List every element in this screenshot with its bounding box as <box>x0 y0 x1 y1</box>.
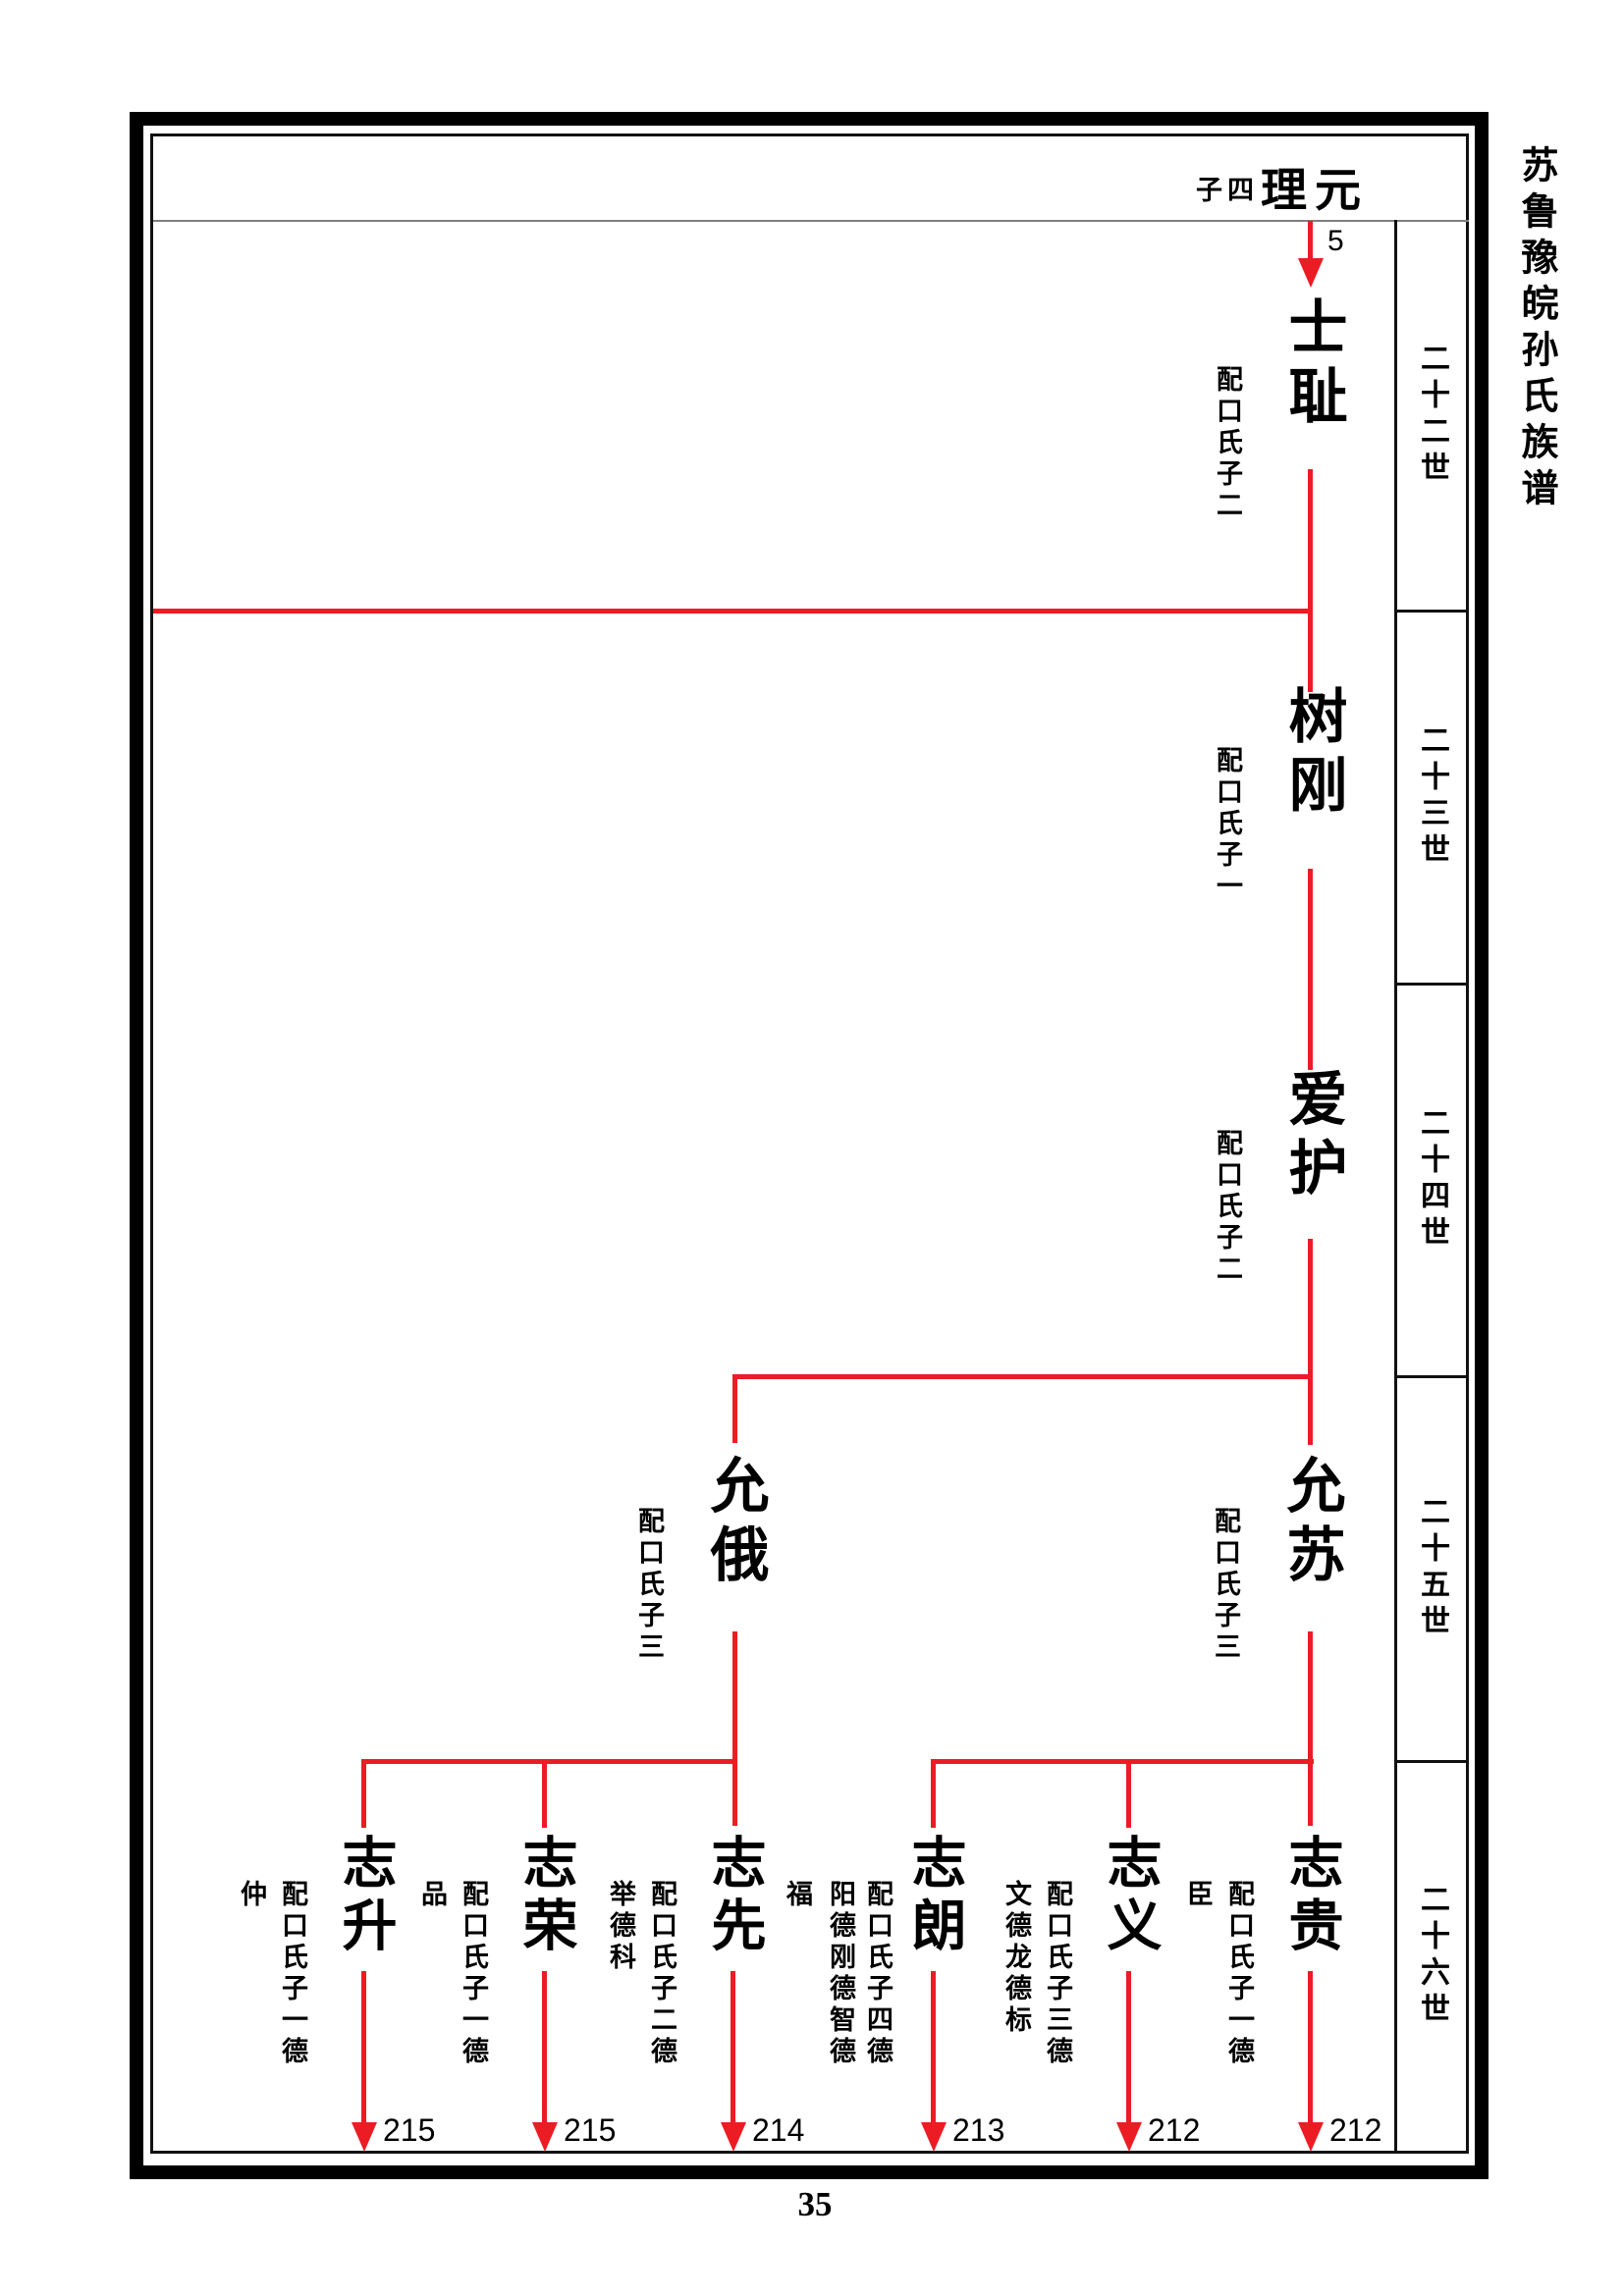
continuation-line <box>1126 1971 1131 2124</box>
continuation-line <box>542 1971 547 2124</box>
sibling-branch-line-g26-right <box>931 1759 1314 1764</box>
person-name-g26-6: 志贵 <box>1279 1834 1342 1959</box>
continuation-ref: 214 <box>752 2112 804 2148</box>
continuation-line-top <box>1308 221 1313 262</box>
person-name-g22: 士耻 <box>1278 296 1347 434</box>
genealogy-page: 子四 理元 二十二世 二十三世 二十四世 二十五世 二十六世 苏鲁豫皖孙氏族谱 … <box>0 0 1624 2296</box>
generation-label-25: 二十五世 <box>1414 1496 1449 1641</box>
generation-label-24: 二十四世 <box>1414 1107 1449 1253</box>
person-name-g26-3: 志先 <box>702 1834 765 1959</box>
person-sons-g26-4: 阳德刚德智德 <box>824 1880 856 2068</box>
person-name-g25-right: 允苏 <box>1276 1455 1345 1592</box>
continuation-arrow-icon <box>1298 258 1324 288</box>
person-name-g26-2: 志荣 <box>514 1834 576 1959</box>
person-name-g26-4: 志朗 <box>902 1834 965 1959</box>
person-spouse-g25-left: 配口氏子三 <box>632 1507 665 1664</box>
person-sons-g26-5: 文德龙德标 <box>1000 1880 1032 2037</box>
descent-drop <box>931 1759 936 1828</box>
sibling-branch-line-g25 <box>732 1374 1313 1379</box>
person-spouse-g22: 配口氏子二 <box>1211 365 1243 522</box>
continuation-arrow-icon <box>1298 2122 1324 2152</box>
descent-drop <box>732 1377 737 1443</box>
continuation-ref-top: 5 <box>1327 224 1344 259</box>
continuation-ref: 215 <box>383 2112 435 2148</box>
person-spouse-g26-4: 配口氏子四德 <box>861 1880 893 2068</box>
continuation-ref: 213 <box>952 2112 1004 2148</box>
ancestor-note: 子四 <box>1196 169 1259 207</box>
person-spouse-g26-3: 配口氏子二德 <box>645 1880 677 2068</box>
descent-drop <box>1126 1759 1131 1828</box>
descent-line <box>1308 1631 1313 1826</box>
continuation-ref: 215 <box>564 2112 616 2148</box>
continuation-line <box>361 1971 366 2124</box>
person-sons-g26-2: 品 <box>415 1880 448 1911</box>
person-sons2-g26-4: 福 <box>781 1880 813 1911</box>
continuation-arrow-icon <box>532 2122 558 2152</box>
continuation-line <box>931 1971 936 2124</box>
person-name-g23: 树刚 <box>1278 685 1347 823</box>
continuation-arrow-icon <box>1116 2122 1142 2152</box>
continuation-line <box>1308 1971 1313 2124</box>
person-sons-g26-3: 举德科 <box>604 1880 636 1974</box>
continuation-arrow-icon <box>352 2122 377 2152</box>
page-number: 35 <box>782 2185 848 2224</box>
person-spouse-g26-6: 配口氏子一德 <box>1222 1880 1255 2068</box>
continuation-ref: 212 <box>1148 2112 1200 2148</box>
ancestor-name: 理元 <box>1261 152 1369 220</box>
generation-label-23: 二十三世 <box>1414 724 1449 870</box>
continuation-arrow-icon <box>921 2122 947 2152</box>
sibling-branch-line-g26-left <box>362 1759 736 1764</box>
person-name-g26-1: 志升 <box>333 1834 396 1959</box>
descent-line <box>1308 469 1313 692</box>
generation-row-divider <box>1395 1760 1469 1763</box>
book-title: 苏鲁豫皖孙氏族谱 <box>1513 145 1558 514</box>
person-spouse-g23: 配口氏子一 <box>1211 746 1243 903</box>
sibling-branch-line-offpage <box>153 609 1313 614</box>
person-name-g26-5: 志义 <box>1098 1834 1161 1959</box>
descent-line <box>732 1631 737 1826</box>
continuation-arrow-icon <box>721 2122 746 2152</box>
descent-line <box>1308 1239 1313 1445</box>
person-name-g25-left: 允俄 <box>700 1455 769 1592</box>
person-name-g24: 爱护 <box>1278 1068 1347 1205</box>
person-spouse-g24: 配口氏子二 <box>1211 1129 1243 1286</box>
generation-row-divider <box>1395 983 1469 986</box>
header-separator <box>153 220 1469 222</box>
person-spouse-g26-1: 配口氏子一德 <box>276 1880 308 2068</box>
person-spouse-g25-right: 配口氏子三 <box>1209 1507 1241 1664</box>
generation-row-divider <box>1395 1375 1469 1378</box>
generation-label-26: 二十六世 <box>1414 1884 1449 2029</box>
descent-drop <box>542 1759 547 1828</box>
continuation-ref: 212 <box>1329 2112 1381 2148</box>
person-spouse-g26-2: 配口氏子一德 <box>457 1880 489 2068</box>
person-sons-g26-1: 仲 <box>235 1880 267 1911</box>
continuation-line <box>731 1971 735 2124</box>
descent-line <box>1308 869 1313 1070</box>
generation-label-22: 二十二世 <box>1414 343 1449 488</box>
generation-row-divider <box>1395 610 1469 613</box>
descent-drop <box>361 1759 366 1828</box>
generation-column-line <box>1394 220 1397 2154</box>
person-sons-g26-6: 臣 <box>1181 1880 1214 1911</box>
person-spouse-g26-5: 配口氏子三德 <box>1041 1880 1073 2068</box>
